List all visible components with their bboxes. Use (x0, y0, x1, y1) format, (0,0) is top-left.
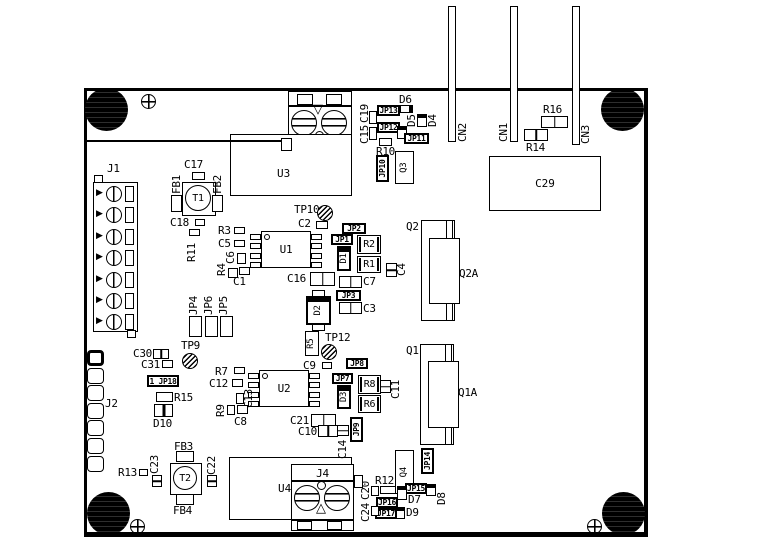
c18-label: C18 (170, 217, 189, 228)
fiducial-crosshair-icon-bottom-right (587, 519, 602, 534)
jp16: JP16 (376, 497, 398, 508)
screw-terminal-icon (106, 293, 122, 309)
c12-body (232, 379, 243, 387)
jp3: JP3 (336, 290, 361, 301)
c8-label: C8 (234, 416, 247, 427)
j3-pad (297, 94, 313, 105)
jp4-label: JP4 (188, 291, 199, 315)
pin1-arrow-icon: ▶ (96, 232, 103, 241)
d4-label: D4 (427, 111, 438, 127)
j1-pad (125, 250, 134, 266)
r9-label: R9 (215, 402, 226, 417)
ic-pin (250, 234, 261, 240)
screw-terminal-icon (106, 314, 122, 330)
r7-label: R7 (215, 366, 228, 377)
r7-body (234, 367, 245, 374)
fb2-label: FB2 (212, 170, 223, 194)
j1-pad (125, 207, 134, 223)
pin1-arrow-icon: ▶ (96, 210, 103, 219)
connector-j2 (87, 350, 104, 472)
q2-label: Q2 (406, 221, 419, 232)
t2-label: T2 (173, 466, 197, 490)
jp1: JP1 (331, 234, 353, 245)
tp12-label: TP12 (325, 332, 350, 343)
jp7: JP7 (332, 373, 353, 384)
c8-body (237, 405, 248, 414)
fb2-body (212, 195, 223, 212)
d10-body (154, 404, 173, 417)
c22-body (207, 475, 217, 487)
r6: R6 (358, 395, 381, 413)
pin1-arrow-icon: ▶ (96, 275, 103, 284)
trace-to-j3 (84, 140, 282, 142)
r12-label: R12 (375, 475, 394, 486)
d1: D1 (337, 246, 351, 271)
j1-pad (125, 293, 134, 309)
j2-pad-6 (87, 438, 104, 454)
r15-label: R15 (174, 392, 193, 403)
j2-pad-5 (87, 420, 104, 436)
c24-body (371, 506, 379, 516)
c22-label: C22 (206, 451, 217, 475)
cn2-pin (448, 6, 456, 142)
j4-label: J4 (292, 467, 353, 480)
c4-label: C4 (396, 260, 407, 276)
cn1-label: CN1 (498, 118, 509, 142)
jp4-body (189, 316, 202, 337)
ic-pin (250, 243, 261, 249)
r5: R5 (305, 331, 319, 356)
d5-label: D5 (406, 111, 417, 127)
c14-label: C14 (337, 437, 348, 459)
j1-position-7: ▶ (94, 313, 137, 331)
j1-label: J1 (107, 163, 120, 174)
fb1-label: FB1 (171, 170, 182, 194)
r16-label: R16 (543, 104, 562, 115)
ic-pin (311, 253, 322, 259)
ic-u1: U1 (261, 231, 311, 268)
r11-label: R11 (186, 238, 197, 262)
j2-label: J2 (105, 398, 118, 409)
r14-label: R14 (526, 142, 545, 153)
j4-pad (297, 521, 312, 530)
screw-terminal-icon (291, 110, 317, 136)
q3: Q3 (395, 151, 414, 184)
c9-label: C9 (303, 360, 316, 371)
j2-pad-2 (87, 368, 104, 384)
jp10: JP10 (376, 155, 389, 182)
c16-body (310, 272, 335, 286)
j1-pad (125, 186, 134, 202)
tp10-label: TP10 (294, 204, 319, 215)
j4-pin-right (354, 475, 363, 488)
r11-body (189, 229, 200, 236)
r15-body (156, 392, 173, 402)
r1: R1 (357, 256, 381, 273)
c31-label: C31 (141, 359, 160, 370)
j2-pad-3 (87, 385, 104, 401)
cn1-pin (510, 6, 518, 142)
j1-position-4: ▶ (94, 249, 137, 267)
mounting-hole-bottom-right (602, 492, 645, 535)
jp18: 1 JP18 (147, 375, 179, 387)
fb1-body (171, 195, 182, 212)
d6-label: D6 (399, 94, 412, 105)
r13-label: R13 (118, 467, 137, 478)
c10-body (318, 425, 338, 437)
transformer-t2: T2 (170, 463, 202, 495)
q1a-label: Q1A (458, 387, 477, 398)
j1-position-2: ▶ (94, 206, 137, 224)
c5-label: C5 (218, 238, 231, 249)
c31-body (162, 360, 173, 368)
c2-label: C2 (298, 218, 311, 229)
mounting-hole-top-right (601, 88, 644, 131)
j1-position-5: ▶ (94, 271, 137, 289)
j1-position-3: ▶ (94, 228, 137, 246)
fb4-label: FB4 (173, 505, 192, 516)
r4-label: R4 (216, 261, 227, 276)
c24-label: C24 (360, 501, 371, 522)
screw-terminal-icon (324, 485, 350, 511)
jp14: JP14 (421, 448, 434, 474)
r14-body (524, 129, 548, 141)
c15-body (369, 127, 377, 140)
c17-label: C17 (184, 159, 203, 170)
jp8: JP8 (346, 358, 368, 369)
pin1-arrow-icon: ▶ (96, 253, 103, 262)
c17-body (192, 172, 205, 180)
c5-body (234, 240, 245, 247)
c7-body (339, 276, 362, 288)
c1-body (239, 267, 250, 275)
r13-body (139, 469, 148, 476)
j4-pad (327, 521, 342, 530)
r8: R8 (358, 375, 381, 394)
ic-pin (311, 243, 322, 249)
jp5-body (220, 316, 233, 337)
c19-body (369, 111, 377, 124)
jp9: JP9 (350, 417, 363, 442)
screw-terminal-icon (106, 186, 122, 202)
d9-body (396, 507, 405, 519)
screw-terminal-icon (106, 229, 122, 245)
d8-label: D8 (436, 488, 447, 505)
c3-label: C3 (363, 303, 376, 314)
c10-label: C10 (298, 426, 317, 437)
jp11: JP11 (404, 133, 429, 144)
c18-body (195, 219, 205, 226)
ic-pin (250, 262, 261, 268)
j1-pad (125, 229, 134, 245)
j2-pad-1 (87, 350, 104, 366)
ic-pin (250, 253, 261, 259)
ic-pin (309, 382, 320, 388)
fb3-body (176, 451, 194, 462)
ic-pin (309, 392, 320, 398)
j3-pin-left (281, 138, 292, 151)
c11-label: C11 (390, 379, 401, 399)
screw-terminal-icon (321, 110, 347, 136)
mounting-hole-bottom-left (87, 492, 130, 535)
r12-body (380, 486, 396, 494)
c9-body (322, 362, 332, 369)
tp9 (182, 353, 198, 369)
mounting-hole-top-left (85, 88, 128, 131)
d7-label: D7 (408, 494, 421, 505)
d2-pad-bottom (312, 324, 325, 331)
ic-pin (309, 401, 320, 407)
ic-pin (311, 234, 322, 240)
pin1-arrow-icon: ▶ (96, 296, 103, 305)
c23-body (152, 475, 162, 487)
screw-terminal-icon (106, 250, 122, 266)
polarity-triangle-icon: ▽ (313, 103, 323, 116)
pin1-arrow-icon: ▶ (96, 189, 103, 198)
fiducial-crosshair-icon-bottom-left (130, 519, 145, 534)
pcb-assembly-drawing: ▽ J3 U3 C29 T1 T2 ▶▶▶▶▶▶▶ U1 U2 U4 J4 (0, 0, 768, 556)
connector-j1: ▶▶▶▶▶▶▶ (93, 182, 138, 332)
fiducial-crosshair-icon-top-left (141, 94, 156, 109)
q2a-body (429, 238, 460, 304)
c20-body (371, 486, 379, 496)
jp2: JP2 (342, 223, 366, 234)
tp10 (317, 205, 333, 221)
c16-label: C16 (287, 273, 306, 284)
c29-label: C29 (535, 177, 555, 190)
c1-label: C1 (233, 276, 246, 287)
q1a-body (428, 361, 459, 428)
screw-terminal-icon (106, 207, 122, 223)
connector-j4: J4 △ (291, 464, 354, 531)
d10-label: D10 (153, 418, 172, 429)
cn3-label: CN3 (580, 120, 591, 144)
d2: D2 (306, 296, 331, 325)
pin1-marker-icon (264, 234, 270, 240)
d9-label: D9 (406, 507, 419, 518)
d7-body (397, 486, 407, 500)
q2a-label: Q2A (459, 268, 478, 279)
j1-stub-bottom (127, 330, 136, 338)
j4-center-hole (317, 481, 326, 490)
pin1-arrow-icon: ▶ (96, 317, 103, 326)
q1-label: Q1 (406, 345, 419, 356)
c7-label: C7 (363, 276, 376, 287)
t1-label: T1 (185, 185, 211, 211)
jp6-body (205, 316, 218, 337)
j1-stub-top (94, 175, 103, 183)
c3-body (339, 302, 362, 314)
c6-body (237, 253, 246, 264)
polarity-triangle-icon: △ (316, 502, 326, 515)
ic-u2: U2 (259, 370, 309, 407)
c12-label: C12 (209, 378, 228, 389)
j3-pad (326, 94, 342, 105)
screw-terminal-icon (106, 272, 122, 288)
j1-pad (125, 272, 134, 288)
r3-label: R3 (218, 225, 231, 236)
r9-body (227, 405, 235, 415)
c23-label: C23 (149, 450, 160, 474)
u4-label: U4 (278, 482, 291, 495)
ic-pin (248, 373, 259, 379)
cn2-label: CN2 (457, 118, 468, 142)
j1-pad (125, 314, 134, 330)
j2-pad-4 (87, 403, 104, 419)
j1-position-1: ▶ (94, 185, 137, 203)
ic-pin (309, 373, 320, 379)
jp6-label: JP6 (203, 291, 214, 315)
r3-body (234, 227, 245, 234)
pin1-marker-icon (262, 373, 268, 379)
r16-body (541, 116, 568, 128)
tp9-label: TP9 (181, 340, 200, 351)
d3: D3 (337, 385, 351, 409)
c2-body (316, 221, 328, 229)
r2: R2 (357, 235, 381, 254)
c14-body (337, 425, 349, 436)
j1-position-6: ▶ (94, 292, 137, 310)
j2-pad-7 (87, 456, 104, 472)
tp12 (321, 344, 337, 360)
u3-label: U3 (277, 167, 290, 180)
ic-pin (311, 262, 322, 268)
capacitor-c29: C29 (489, 156, 601, 211)
jp5-label: JP5 (218, 291, 229, 315)
jp13: JP13 (377, 105, 400, 116)
